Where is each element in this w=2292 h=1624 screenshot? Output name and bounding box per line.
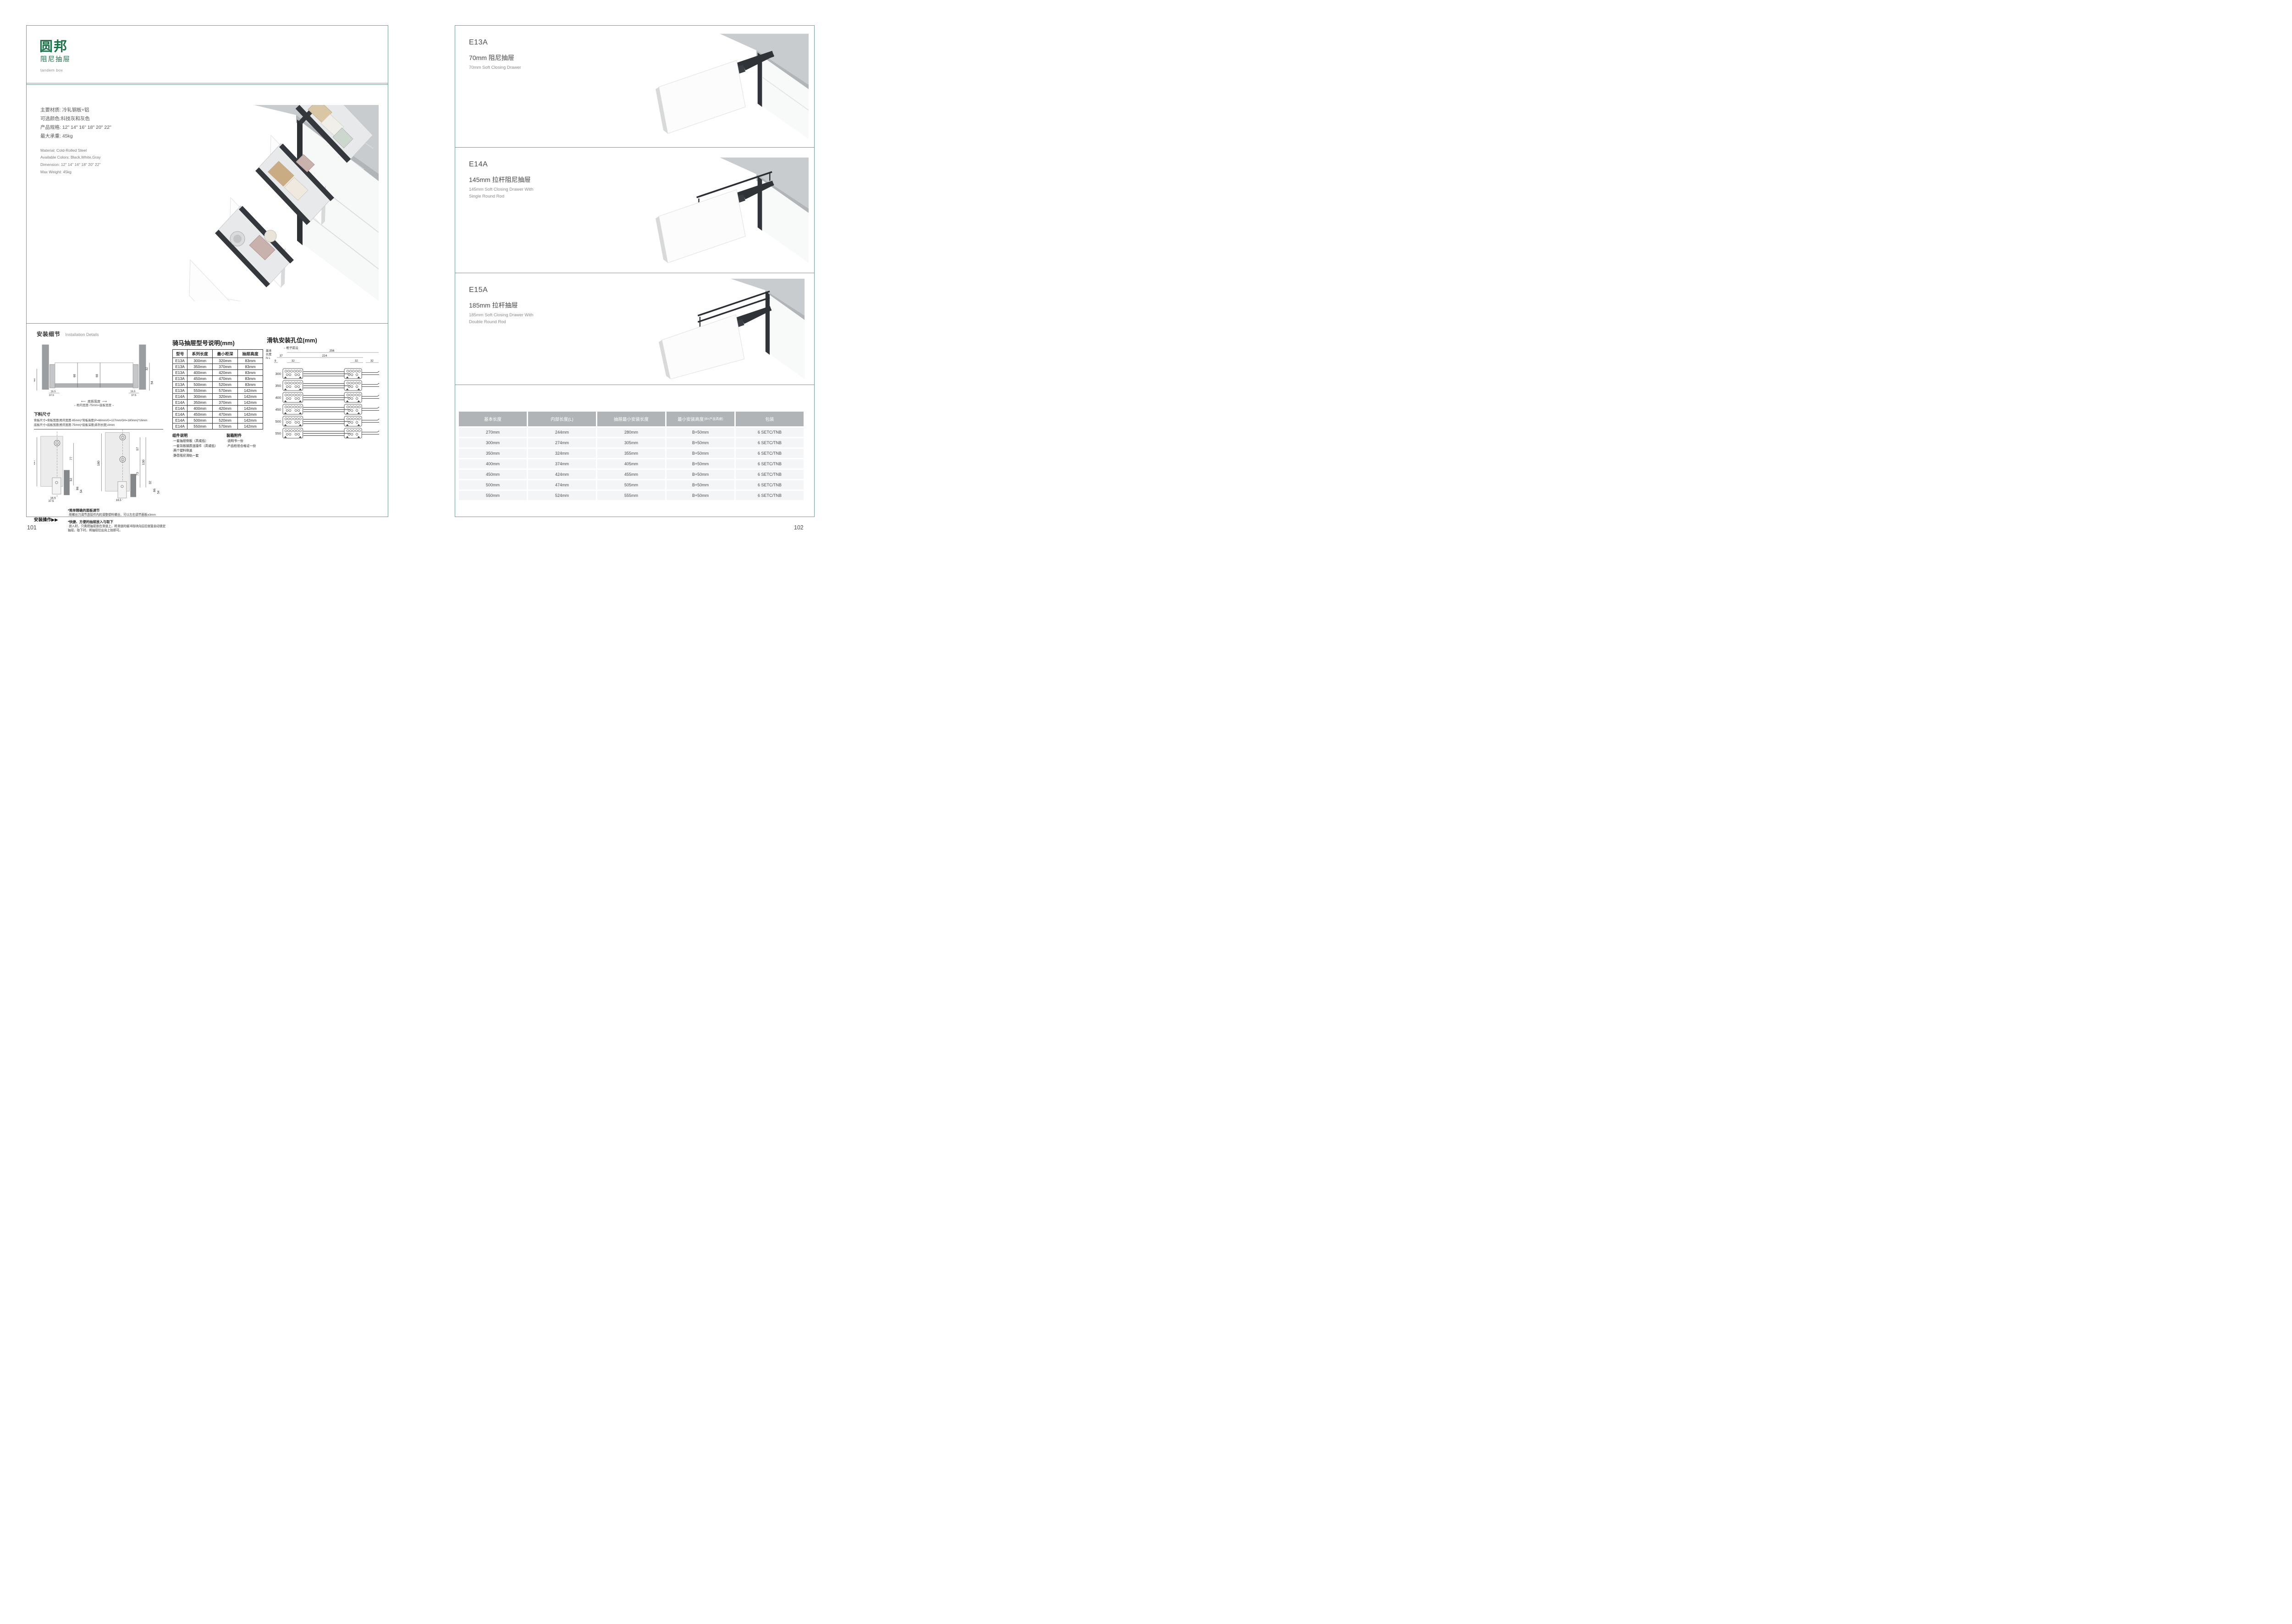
installation-operation-notes: *简单精确的面板调节 ·用螺丝刀调节连接件内的调整塑料螺丝，可以左右调节面板±3… xyxy=(68,506,168,533)
svg-text:68: 68 xyxy=(96,374,99,378)
model-cell: 500mm xyxy=(187,418,213,424)
product-title-cn: 185mm 拉杆抽屉 xyxy=(469,301,518,310)
model-table-row: E14A 550mm 570mm 142mm xyxy=(173,424,263,429)
size-col-header: 最小安装高度(B=产品高度) xyxy=(667,412,734,426)
brand-subtitle: 阻尼抽屉 xyxy=(40,54,71,64)
size-cell: 474mm xyxy=(528,480,596,490)
size-cell: 6 SETC/TNB xyxy=(736,428,804,437)
size-cell: 280mm xyxy=(597,428,665,437)
model-cell: 370mm xyxy=(213,364,238,370)
model-cell: 300mm xyxy=(187,358,213,364)
size-cell: 270mm xyxy=(459,428,527,437)
product-title-cn: 145mm 拉杆阻尼抽屉 xyxy=(469,175,531,184)
model-table-row: E13A 400mm 420mm 83mm xyxy=(173,370,263,376)
product-title-en: 185mm Soft Closing Drawer With Double Ro… xyxy=(469,312,570,325)
slide-length-label: 400 xyxy=(273,396,282,400)
model-cell: 420mm xyxy=(213,406,238,412)
svg-text:16.5: 16.5 xyxy=(116,499,121,502)
model-cell: E13A xyxy=(173,376,187,382)
model-cell: 350mm xyxy=(187,364,213,370)
product-image-e15a xyxy=(637,279,809,379)
svg-text:130: 130 xyxy=(142,460,145,465)
left-page: 圆邦 阻尼抽屉 tandem box 主要材质: 冷轧钢板+铝可选颜色:科技灰和… xyxy=(26,25,388,517)
size-cell: B+50mm xyxy=(667,470,734,479)
svg-text:256: 256 xyxy=(330,349,335,352)
model-cell: E14A xyxy=(173,412,187,418)
size-cell: B+50mm xyxy=(667,480,734,490)
installation-title: 安装细节 Installation Details xyxy=(37,330,99,338)
size-table: 基本长度 内部长度(L) 抽屉最小安装长度 最小安装高度(B=产品高度) 包装 … xyxy=(459,412,804,500)
size-cell: 350mm xyxy=(459,449,527,458)
model-cell: 470mm xyxy=(213,376,238,382)
product-title-en: 70mm Soft Closing Drawer xyxy=(469,64,570,71)
model-cell: 142mm xyxy=(238,418,263,424)
model-cell: 142mm xyxy=(238,400,263,406)
operation-note: *简单精确的面板调节 ·用螺丝刀调节连接件内的调整塑料螺丝，可以左右调节面板±3… xyxy=(68,508,168,517)
catalog-spread: 圆邦 阻尼抽屉 tandem box 主要材质: 冷轧钢板+铝可选颜色:科技灰和… xyxy=(0,0,830,541)
slide-row: 350 xyxy=(273,380,384,391)
svg-text:54: 54 xyxy=(151,381,154,385)
model-cell: 320mm xyxy=(213,358,238,364)
model-cell: E14A xyxy=(173,424,187,429)
svg-text:37.5: 37.5 xyxy=(49,500,54,502)
svg-text:180: 180 xyxy=(97,461,100,466)
model-table-title: 骑马抽屉型号说明(mm) xyxy=(172,338,264,347)
model-table-row: E13A 350mm 370mm 83mm xyxy=(173,364,263,370)
spec-line: 最大承重: 45kg xyxy=(40,132,111,141)
model-cell: E13A xyxy=(173,358,187,364)
model-cell: 142mm xyxy=(238,388,263,394)
slide-length-label: 500 xyxy=(273,419,282,424)
model-cell: 520mm xyxy=(213,418,238,424)
brand-header: 圆邦 阻尼抽屉 tandem box xyxy=(27,26,388,83)
size-cell: B+50mm xyxy=(667,491,734,500)
specs-chinese: 主要材质: 冷轧钢板+铝可选颜色:科技灰和灰色产品规格: 12" 14" 16"… xyxy=(40,106,111,141)
model-cell: 142mm xyxy=(238,412,263,418)
model-cell: 400mm xyxy=(187,406,213,412)
model-cell: 320mm xyxy=(213,394,238,400)
svg-text:73: 73 xyxy=(136,472,139,476)
model-table-row: E13A 450mm 470mm 83mm xyxy=(173,376,263,382)
size-cell: 550mm xyxy=(459,491,527,500)
svg-text:54: 54 xyxy=(80,490,83,493)
svg-text:224: 224 xyxy=(322,354,327,358)
size-cell: 274mm xyxy=(528,438,596,447)
model-cell: E13A xyxy=(173,364,187,370)
right-page: E13A 70mm 阻尼抽屉 70mm Soft Closing Drawer xyxy=(455,25,815,517)
size-col-header: 抽屉最小安装长度 xyxy=(597,412,665,426)
model-cell: 450mm xyxy=(187,412,213,418)
size-cell: 6 SETC/TNB xyxy=(736,438,804,447)
svg-text:32: 32 xyxy=(149,481,152,484)
main-product-photo xyxy=(181,105,379,301)
model-cell: 400mm xyxy=(187,370,213,376)
model-cell: 550mm xyxy=(187,388,213,394)
model-cell: E14A xyxy=(173,406,187,412)
slide-rail-drawing xyxy=(282,428,380,439)
slide-rail-drawing xyxy=(282,416,380,427)
svg-text:32: 32 xyxy=(292,360,295,363)
svg-text:32: 32 xyxy=(145,367,149,371)
slide-row: 550 xyxy=(273,427,384,439)
spec-line: 产品规格: 12" 14" 16" 18" 20" 22" xyxy=(40,123,111,132)
model-table-row: E13A 500mm 520mm 83mm xyxy=(173,382,263,388)
model-cell: E13A xyxy=(173,370,187,376)
size-cell: 455mm xyxy=(597,470,665,479)
size-cell: 6 SETC/TNB xyxy=(736,449,804,458)
slide-length-label: 450 xyxy=(273,407,282,412)
model-table: 型号 系列长度 最小柜深 抽屉高度 E13A 300mm 320mm xyxy=(172,349,263,429)
spec-line: 主要材质: 冷轧钢板+铝 xyxy=(40,106,111,115)
slide-holes-axis-label: 基本 长度 N L xyxy=(266,349,272,361)
slide-length-label: 550 xyxy=(273,431,282,435)
model-cell: 500mm xyxy=(187,382,213,388)
drawer-bottom xyxy=(189,206,292,301)
size-cell: 324mm xyxy=(528,449,596,458)
model-col-header: 系列长度 xyxy=(187,350,213,358)
size-cell: B+50mm xyxy=(667,459,734,468)
product-section-e14a: E14A 145mm 拉杆阻尼抽屉 145mm Soft Closing Dra… xyxy=(455,148,814,273)
model-cell: 83mm xyxy=(238,376,263,382)
size-cell: 6 SETC/TNB xyxy=(736,470,804,479)
model-col-header: 型号 xyxy=(173,350,187,358)
slide-rows: 300 xyxy=(273,368,384,439)
spec-line: Material: Cold-Rolled Steel xyxy=(40,147,111,154)
size-cell: 300mm xyxy=(459,438,527,447)
installation-section: 安装细节 Installation Details 68 68 xyxy=(27,324,388,517)
size-cell: 424mm xyxy=(528,470,596,479)
brand-logo: 圆邦 xyxy=(39,36,68,55)
svg-text:32: 32 xyxy=(70,478,73,482)
size-cell: 450mm xyxy=(459,470,527,479)
slide-row: 400 xyxy=(273,391,384,403)
slide-holes-title: 滑轨安装孔位(mm) xyxy=(267,336,384,344)
product-specs: 主要材质: 冷轧钢板+铝可选颜色:科技灰和灰色产品规格: 12" 14" 16"… xyxy=(40,106,111,176)
slide-rail-drawing xyxy=(282,380,380,391)
bottom-width-formula: ←柜内宽度-75mm=底板宽度→ xyxy=(34,404,154,408)
product-code: E15A xyxy=(469,286,488,294)
model-cell: 300mm xyxy=(187,394,213,400)
size-cell: 555mm xyxy=(597,491,665,500)
model-cell: 420mm xyxy=(213,370,238,376)
brand-tagline: tandem box xyxy=(40,68,63,72)
size-cell: 6 SETC/TNB xyxy=(736,491,804,500)
installation-operation: 安装操作▶▶ *简单精确的面板调节 ·用螺丝刀调节连接件内的调整塑料螺丝，可以左… xyxy=(34,506,170,533)
size-cell: 405mm xyxy=(597,459,665,468)
size-cell: B+50mm xyxy=(667,428,734,437)
model-table-row: E13A 550mm 570mm 142mm xyxy=(173,388,263,394)
cutting-size-lines: 背板尺寸=背板宽度(柜内宽度-85mm)*背板高度(P=68mm/G=127mm… xyxy=(34,418,170,427)
size-cell: 6 SETC/TNB xyxy=(736,480,804,490)
slide-row: 500 xyxy=(273,415,384,427)
operation-note-head: *简单精确的面板调节 xyxy=(68,508,168,513)
svg-text:57: 57 xyxy=(136,447,139,451)
slide-rail-drawing xyxy=(282,404,380,415)
cutting-line: 底板尺寸=底板宽度(柜内宽度-75mm)*底板深度(系列长度)-8mm xyxy=(34,423,170,427)
component-item: ·静音阻尼滑轨一套 xyxy=(172,454,226,459)
slide-row: 450 xyxy=(273,403,384,415)
spec-line: Dimension: 12" 14" 16" 18" 20" 22" xyxy=(40,161,111,169)
size-cell: 500mm xyxy=(459,480,527,490)
component-item: ·两个塑料侧盖 xyxy=(172,449,226,454)
size-cell: 355mm xyxy=(597,449,665,458)
model-cell: 83mm xyxy=(238,358,263,364)
installation-operation-label: 安装操作▶▶ xyxy=(34,506,68,523)
components-list: 组件说明 ·一套抽屉侧板（高或低）·一套背板钢质连接件（高或低）·两个塑料侧盖·… xyxy=(172,433,226,459)
product-image-e13a xyxy=(637,31,809,142)
model-cell: 370mm xyxy=(213,400,238,406)
svg-text:←柜子前沿: ←柜子前沿 xyxy=(283,346,298,350)
svg-text:32: 32 xyxy=(355,360,358,363)
size-col-header: 包装 xyxy=(736,412,804,426)
operation-note-body: ·放入时，只需把抽屉放在滑道上，将滑道的缓冲挡块向后拉就能自动锁定抽屉。取下时，… xyxy=(68,524,168,533)
slide-rail-drawing xyxy=(282,392,380,403)
spec-line: 可选颜色:科技灰和灰色 xyxy=(40,115,111,123)
model-cell: 142mm xyxy=(238,406,263,412)
component-item: ·一套抽屉侧板（高或低） xyxy=(172,439,226,444)
product-section-e13a: E13A 70mm 阻尼抽屉 70mm Soft Closing Drawer xyxy=(455,26,814,148)
size-col-header: 内部长度(L) xyxy=(528,412,596,426)
model-cell: 570mm xyxy=(213,424,238,429)
model-cell: 570mm xyxy=(213,388,238,394)
specs-english: Material: Cold-Rolled SteelAvailable Col… xyxy=(40,147,111,176)
model-cell: E13A xyxy=(173,388,187,394)
svg-text:77: 77 xyxy=(70,457,73,460)
model-cell: 450mm xyxy=(187,376,213,382)
product-title-cn: 70mm 阻尼抽屉 xyxy=(469,53,514,62)
svg-text:9: 9 xyxy=(275,360,276,363)
model-table-row: E14A 450mm 470mm 142mm xyxy=(173,412,263,418)
model-table-row: E14A 400mm 420mm 142mm xyxy=(173,406,263,412)
svg-text:37.5: 37.5 xyxy=(49,394,54,397)
slide-rail-drawing xyxy=(282,368,380,380)
size-cell: B+50mm xyxy=(667,449,734,458)
double-arrow-icon: ▶▶ xyxy=(51,517,58,523)
svg-text:86: 86 xyxy=(76,487,79,490)
svg-text:16.5: 16.5 xyxy=(50,391,55,393)
slide-length-label: 350 xyxy=(273,384,282,388)
size-cell: 6 SETC/TNB xyxy=(736,459,804,468)
model-cell: E14A xyxy=(173,418,187,424)
model-cell: 142mm xyxy=(238,394,263,400)
cutting-size-title: 下料尺寸 xyxy=(34,411,170,417)
model-cell: E13A xyxy=(173,382,187,388)
accessory-item: ·说明书一份 xyxy=(226,439,263,444)
model-cell: E14A xyxy=(173,400,187,406)
svg-text:46: 46 xyxy=(34,378,36,382)
cutting-line: 背板尺寸=背板宽度(柜内宽度-85mm)*背板高度(P=68mm/G=127mm… xyxy=(34,418,170,423)
model-cell: 142mm xyxy=(238,424,263,429)
model-cell: 520mm xyxy=(213,382,238,388)
component-item: ·一套背板钢质连接件（高或低） xyxy=(172,444,226,449)
components-title: 组件说明 xyxy=(172,433,226,438)
slide-holes-column: 滑轨安装孔位(mm) 基本 长度 N L ←柜子前沿 256 224 37 9 xyxy=(267,336,384,439)
model-cell: 550mm xyxy=(187,424,213,429)
model-table-row: E14A 500mm 520mm 142mm xyxy=(173,418,263,424)
diagram-column: 68 68 46 32 54 16.5 37.5 16.5 37.5 ⟵ 底板宽… xyxy=(34,342,170,533)
size-col-header: 基本长度 xyxy=(459,412,527,426)
model-table-row: E13A 300mm 320mm 83mm xyxy=(173,358,263,364)
svg-text:37: 37 xyxy=(280,355,283,358)
slide-row: 300 xyxy=(273,368,384,380)
kitchen-drawers-illustration xyxy=(181,105,379,301)
spec-line: Available Colors: Black,White,Gray xyxy=(40,154,111,161)
model-cell: 470mm xyxy=(213,412,238,418)
operation-note: *快捷、方便的抽屉放入与取下 ·放入时，只需把抽屉放在滑道上，将滑道的缓冲挡块向… xyxy=(68,519,168,533)
product-section-e15a: E15A 185mm 拉杆抽屉 185mm Soft Closing Drawe… xyxy=(455,273,814,385)
size-cell: 400mm xyxy=(459,459,527,468)
size-cell: 244mm xyxy=(528,428,596,437)
page-number-right: 102 xyxy=(794,524,804,531)
svg-text:32: 32 xyxy=(370,360,374,363)
svg-text:127: 127 xyxy=(34,460,36,465)
svg-text:16.5: 16.5 xyxy=(130,391,135,393)
product-code: E14A xyxy=(469,160,488,169)
installation-title-en: Installation Details xyxy=(65,332,99,337)
size-cell: B+50mm xyxy=(667,438,734,447)
svg-text:86: 86 xyxy=(153,489,156,492)
model-table-column: 骑马抽屉型号说明(mm) 型号 系列长度 最小柜深 抽屉高度 xyxy=(172,338,264,459)
model-col-header: 抽屉高度 xyxy=(238,350,263,358)
size-cell: 524mm xyxy=(528,491,596,500)
product-overview-section: 主要材质: 冷轧钢板+铝可选颜色:科技灰和灰色产品规格: 12" 14" 16"… xyxy=(27,85,388,324)
product-image-e14a xyxy=(637,153,809,267)
accessories-title: 装箱附件 xyxy=(226,433,263,438)
model-table-row: E14A 300mm 320mm 142mm xyxy=(173,394,263,400)
svg-text:37.5: 37.5 xyxy=(131,394,136,397)
product-code: E13A xyxy=(469,39,488,47)
operation-note-body: ·用螺丝刀调节连接件内的调整塑料螺丝，可以左右调节面板±3mm xyxy=(68,513,168,517)
slide-holes-dimension-header: ←柜子前沿 256 224 37 9 32 32 32 xyxy=(273,345,380,365)
model-col-header: 最小柜深 xyxy=(213,350,238,358)
package-lists: 组件说明 ·一套抽屉侧板（高或低）·一套背板钢质连接件（高或低）·两个塑料侧盖·… xyxy=(172,433,264,459)
model-cell: E14A xyxy=(173,394,187,400)
size-cell: 505mm xyxy=(597,480,665,490)
accessories-list: 装箱附件 ·说明书一份·产品检验合格证一份 xyxy=(226,433,263,459)
model-table-row: E14A 350mm 370mm 142mm xyxy=(173,400,263,406)
spec-line: Max Weight: 45kg xyxy=(40,169,111,176)
product-title-en: 145mm Soft Closing Drawer With Single Ro… xyxy=(469,186,570,200)
size-cell: 305mm xyxy=(597,438,665,447)
accessory-item: ·产品检验合格证一份 xyxy=(226,444,263,449)
model-cell: 83mm xyxy=(238,370,263,376)
elevation-diagrams: 127 77 32 86 54 16.5 37.5 xyxy=(34,429,164,502)
cross-section-diagram: 68 68 46 32 54 16.5 37.5 16.5 37.5 xyxy=(34,342,154,397)
page-number-left: 101 xyxy=(27,524,37,531)
model-cell: 83mm xyxy=(238,364,263,370)
svg-text:68: 68 xyxy=(73,374,76,378)
installation-title-cn: 安装细节 xyxy=(37,331,61,337)
slide-length-label: 300 xyxy=(273,372,282,376)
model-cell: 350mm xyxy=(187,400,213,406)
svg-text:54: 54 xyxy=(157,490,160,494)
model-cell: 83mm xyxy=(238,382,263,388)
operation-note-head: *快捷、方便的抽屉放入与取下 xyxy=(68,519,168,524)
size-cell: 374mm xyxy=(528,459,596,468)
